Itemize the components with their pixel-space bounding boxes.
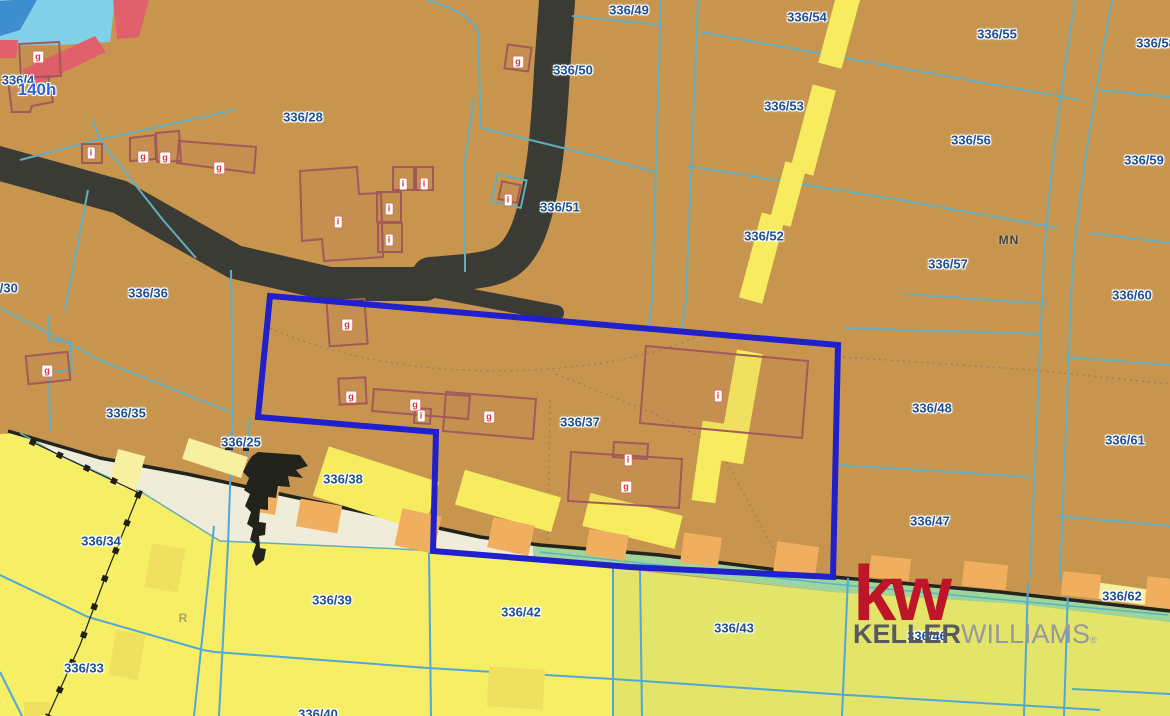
landuse-r-label: R [179, 611, 188, 625]
building-type-mark: g [410, 400, 420, 411]
parcel-label: 336/40 [298, 707, 338, 716]
parcel-label: 336/35 [106, 406, 146, 421]
parcel-label: 336/33 [64, 661, 104, 676]
building-type-mark: i [386, 235, 393, 246]
parcel-label: 336/58 [1136, 36, 1170, 51]
parcel-label: 336/43 [714, 621, 754, 636]
building-type-mark: i [715, 391, 722, 402]
building-type-mark: i [335, 217, 342, 228]
kw-wordmark: KELLERWILLIAMS® [853, 619, 1097, 649]
building-type-mark: g [138, 152, 148, 163]
parcel-label: 336/39 [312, 593, 352, 608]
building-type-mark: g [342, 320, 352, 331]
building-type-mark: i [88, 148, 95, 159]
parcel-label: 336/62 [1102, 589, 1142, 604]
building-type-mark: g [513, 57, 523, 68]
building-type-mark: i [418, 411, 425, 422]
building-type-mark: g [346, 392, 356, 403]
building-type-mark: i [386, 204, 393, 215]
landuse-label: MN [999, 233, 1020, 247]
parcel-label: 336/55 [977, 27, 1017, 42]
parcel-label: 336/49 [609, 3, 649, 18]
parcel-label: 336/25 [221, 435, 261, 450]
parcel-label: 336/36 [128, 286, 168, 301]
building-type-mark: i [421, 179, 428, 190]
hectare-label: 140h [18, 80, 57, 100]
building-type-mark: i [625, 455, 632, 466]
building-type-mark: i [400, 179, 407, 190]
parcel-label: 336/54 [787, 10, 827, 25]
cadastral-map[interactable]: 336/4140h336/28336/49336/50336/51336/543… [0, 0, 1170, 716]
parcel-label: 336/61 [1105, 433, 1145, 448]
parcel-label: 336/30 [0, 281, 18, 296]
parcel-label: 336/59 [1124, 153, 1164, 168]
building-type-mark: g [484, 412, 494, 423]
parcel-label: 336/28 [283, 110, 323, 125]
parcel-label: 336/42 [501, 605, 541, 620]
building-type-mark: g [33, 52, 43, 63]
building-type-mark: g [42, 366, 52, 377]
parcel-label: 336/38 [323, 472, 363, 487]
kw-mark: kw [853, 565, 1097, 621]
building-type-mark: g [621, 482, 631, 493]
parcel-label: 336/53 [764, 99, 804, 114]
parcel-label: 336/37 [560, 415, 600, 430]
parcel-label: 336/60 [1112, 288, 1152, 303]
parcel-label: 336/50 [553, 63, 593, 78]
building-type-mark: g [160, 153, 170, 164]
building-type-mark: i [505, 195, 512, 206]
keller-williams-logo: kw KELLERWILLIAMS® [853, 565, 1097, 648]
parcel-label: 336/52 [744, 229, 784, 244]
parcel-label: 336/34 [81, 534, 121, 549]
parcel-label: 336/51 [540, 200, 580, 215]
parcel-label: 336/56 [951, 133, 991, 148]
building-type-mark: g [214, 163, 224, 174]
parcel-label: 336/48 [912, 401, 952, 416]
parcel-label: 336/47 [910, 514, 950, 529]
parcel-label: 336/57 [928, 257, 968, 272]
